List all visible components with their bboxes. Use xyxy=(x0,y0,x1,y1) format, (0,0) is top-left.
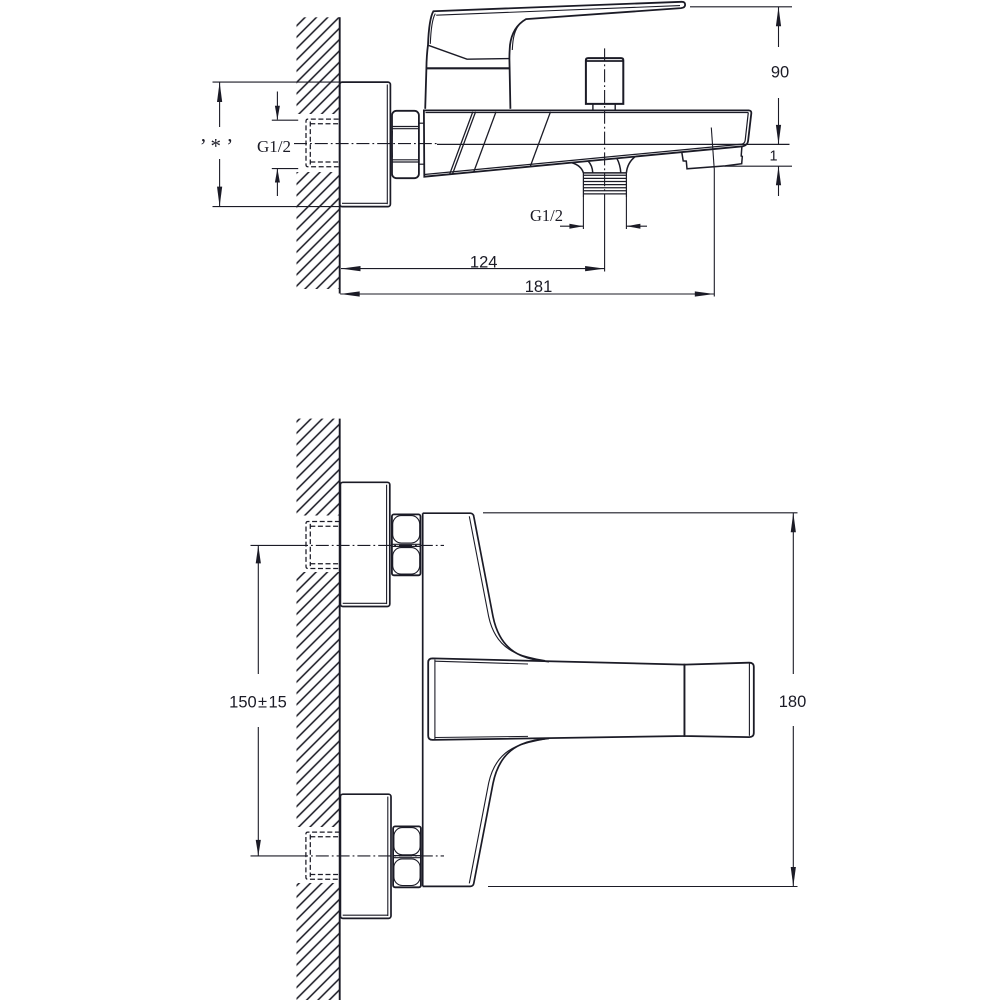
svg-text:124: 124 xyxy=(470,253,498,271)
svg-text:’ * ’: ’ * ’ xyxy=(200,134,233,158)
svg-text:1: 1 xyxy=(769,149,777,165)
svg-text:G1/2: G1/2 xyxy=(530,206,563,225)
svg-text:90: 90 xyxy=(771,64,789,82)
svg-text:150 ± 15: 150 ± 15 xyxy=(229,694,287,712)
svg-text:G1/2: G1/2 xyxy=(257,137,291,156)
svg-text:181: 181 xyxy=(525,278,553,296)
svg-text:180: 180 xyxy=(779,693,807,711)
